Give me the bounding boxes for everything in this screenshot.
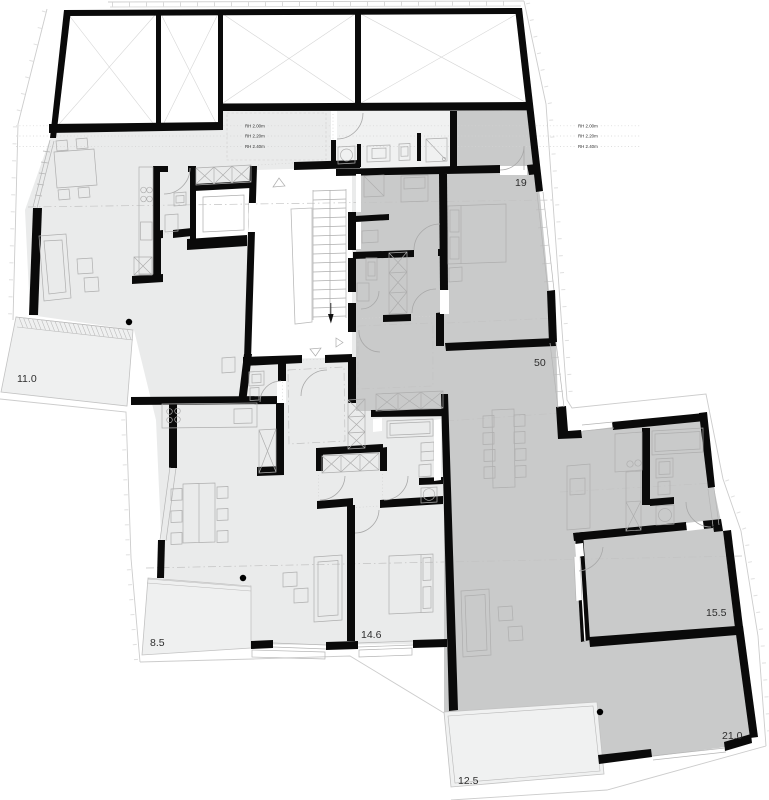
svg-text:RH 2.40m: RH 2.40m — [578, 144, 598, 149]
svg-text:8.5: 8.5 — [150, 637, 165, 649]
svg-text:15.5: 15.5 — [706, 607, 727, 619]
svg-text:RH 2.20m: RH 2.20m — [578, 134, 598, 139]
svg-text:RH 2.00m: RH 2.00m — [245, 124, 265, 129]
svg-text:11.0: 11.0 — [17, 373, 37, 385]
svg-text:RH 2.40m: RH 2.40m — [245, 144, 265, 149]
svg-text:12.5: 12.5 — [458, 775, 479, 787]
svg-text:14.6: 14.6 — [361, 629, 382, 641]
svg-text:19: 19 — [515, 177, 527, 189]
svg-text:21.0: 21.0 — [722, 730, 743, 742]
svg-text:RH 2.00m: RH 2.00m — [578, 124, 598, 129]
svg-text:50: 50 — [534, 357, 546, 369]
svg-text:RH 2.20m: RH 2.20m — [245, 134, 265, 139]
